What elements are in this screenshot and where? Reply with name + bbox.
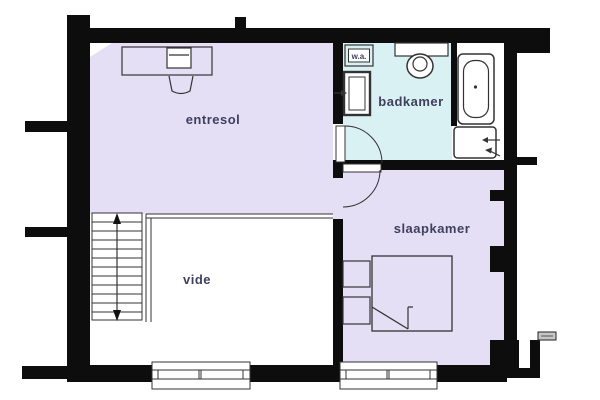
wall-entresol-badkamer: [333, 43, 343, 124]
wall-bottom-left-stub: [22, 366, 68, 379]
badkamer-door-leaf: [336, 126, 345, 162]
wall-top-right-corner: [513, 28, 550, 53]
wall-pillar-2: [490, 246, 517, 272]
slaapkamer-floor: [343, 170, 504, 365]
vide-label: vide: [183, 272, 211, 287]
floorplan-drawing: entresol badkamer slaapkamer vide w.a.: [0, 0, 600, 400]
bathtub: [458, 54, 494, 124]
window-slaapkamer: [340, 362, 437, 389]
staircase: [92, 213, 142, 321]
entresol-label: entresol: [186, 112, 241, 127]
wall-pillar-1: [490, 190, 517, 201]
slaapkamer-door-leaf: [343, 164, 381, 172]
wall-left-stub-2: [25, 227, 68, 237]
bathtub-drain: [474, 85, 477, 88]
wall-bottom: [67, 365, 507, 382]
wall-top-stub: [235, 17, 246, 30]
room-floors: [90, 43, 504, 365]
window-vide: [152, 362, 250, 389]
badkamer-label: badkamer: [378, 94, 443, 109]
floorplan-canvas: entresol badkamer slaapkamer vide w.a.: [0, 0, 600, 400]
slaapkamer-label: slaapkamer: [394, 221, 471, 236]
slaapkamer-door-gap-floor: [333, 178, 343, 219]
wall-bottom-right-notch: [519, 338, 530, 368]
wall-top: [67, 28, 550, 43]
wa-label: w.a.: [351, 52, 367, 61]
monitor: [167, 48, 191, 68]
wall-entresol-slaapkamer: [333, 219, 343, 365]
wall-bottom-right-block: [490, 340, 540, 378]
sink: [454, 127, 500, 158]
wall-left-stub-1: [25, 121, 68, 132]
vent-flue: [538, 332, 556, 340]
wall-right-stub: [517, 157, 537, 165]
wall-bath-separator: [451, 43, 457, 126]
wall-left: [67, 15, 90, 382]
vide-opening-edge: [146, 214, 333, 322]
